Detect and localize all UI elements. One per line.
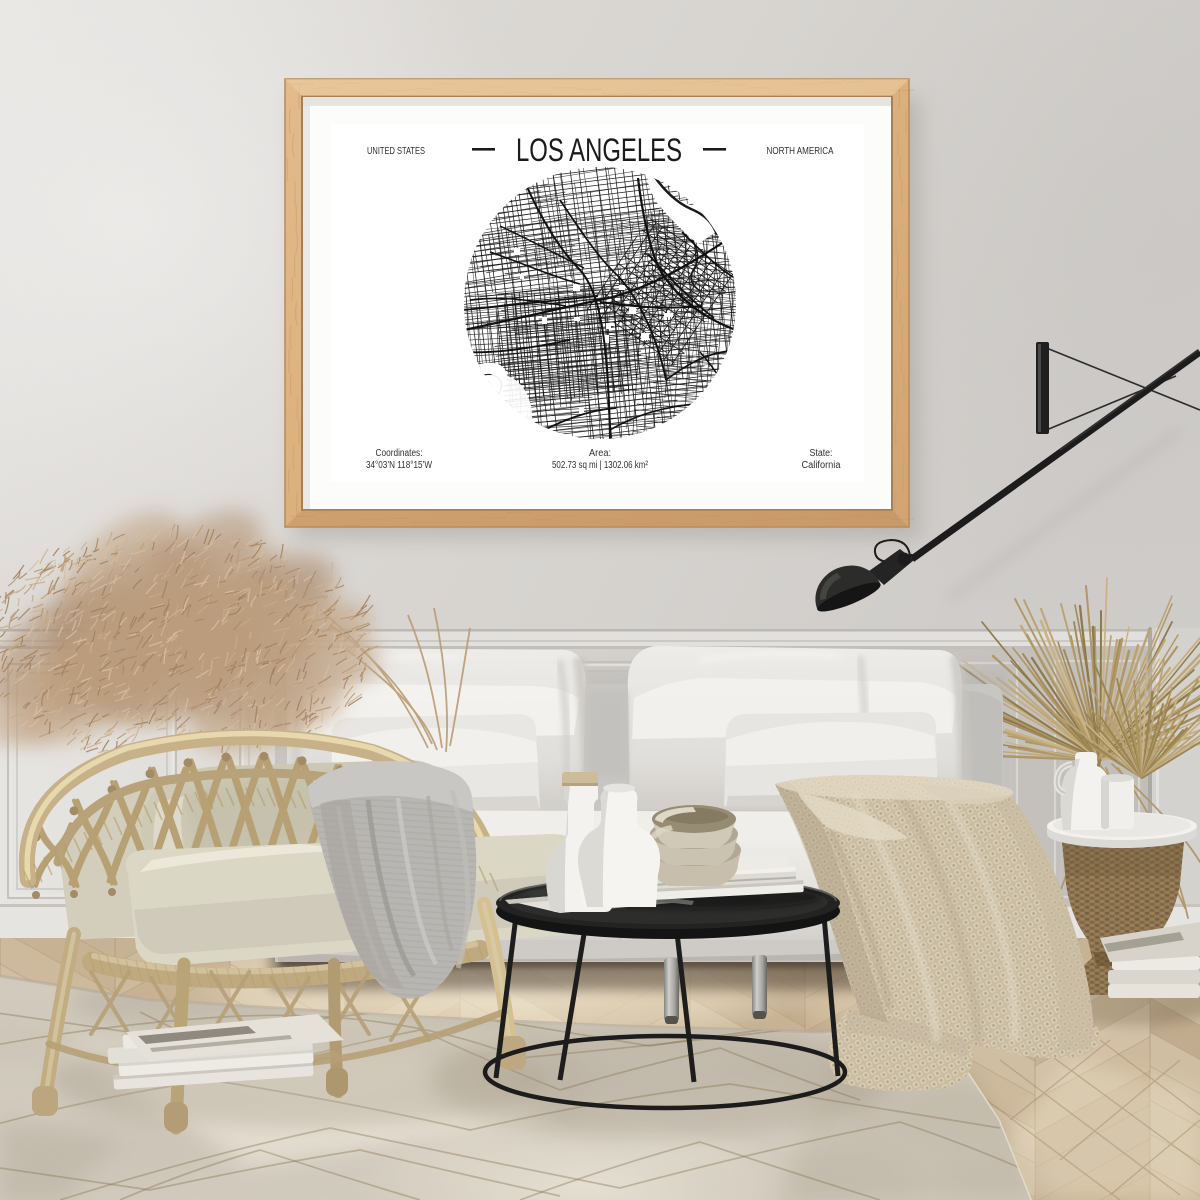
svg-text:California: California: [802, 460, 841, 471]
svg-text:State:: State:: [810, 448, 833, 459]
svg-text:Area:: Area:: [589, 448, 611, 459]
svg-text:LOS ANGELES: LOS ANGELES: [516, 132, 682, 168]
svg-text:NORTH AMERICA: NORTH AMERICA: [767, 146, 834, 157]
svg-text:34°03’N 118°15’W: 34°03’N 118°15’W: [366, 460, 432, 471]
svg-text:502.73 sq mi | 1302.06 km²: 502.73 sq mi | 1302.06 km²: [552, 460, 649, 471]
svg-text:UNITED STATES: UNITED STATES: [367, 146, 425, 157]
svg-text:Coordinates:: Coordinates:: [376, 448, 423, 459]
